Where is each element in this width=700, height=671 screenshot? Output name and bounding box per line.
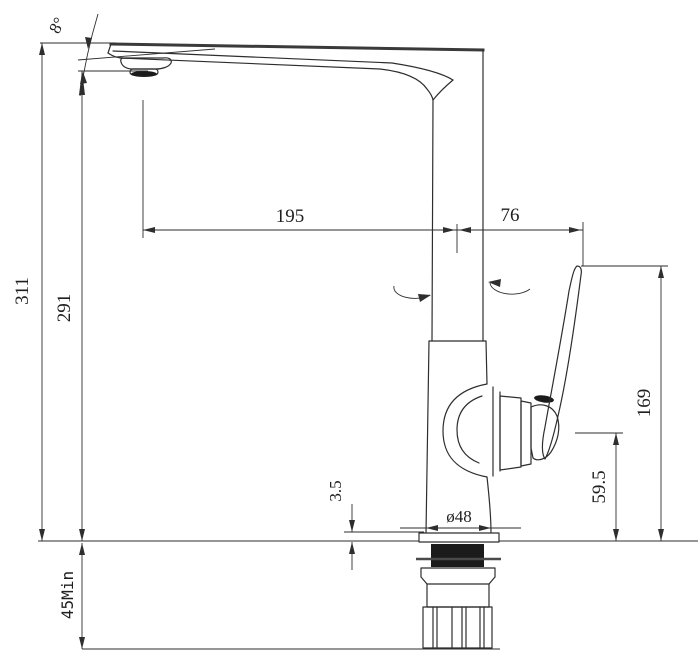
drawing-canvas: 8° 311 291 195 76 169 xyxy=(0,0,700,671)
cartridge-ring-1 xyxy=(500,396,521,470)
dim-base-diameter-label: ø48 xyxy=(446,507,472,526)
countertop-reference xyxy=(38,541,698,649)
dim-overall-height-label: 311 xyxy=(12,277,33,305)
arrowhead-up xyxy=(349,542,355,554)
arrowhead-down xyxy=(79,637,85,649)
arrowhead-down xyxy=(349,520,355,532)
dim-body-height: 59.5 xyxy=(575,433,623,541)
aerator-outlet xyxy=(131,71,157,77)
dim-plate-thickness-label: 3.5 xyxy=(326,480,345,501)
arrowhead-up xyxy=(39,43,45,55)
dim-outlet-height-label: 291 xyxy=(54,294,75,323)
valve-body-inner xyxy=(457,396,482,463)
threaded-shank xyxy=(431,544,484,567)
dim-handle-top-height-label: 169 xyxy=(634,389,655,418)
deck-plate xyxy=(419,533,499,542)
faucet-dimension-drawing: 8° 311 291 195 76 169 xyxy=(0,0,700,671)
valve-body-outer xyxy=(443,384,487,477)
swivel-arrowhead-left xyxy=(418,294,431,302)
swivel-arrows xyxy=(394,279,530,302)
arrowhead-down xyxy=(658,529,664,541)
faucet-outline xyxy=(108,44,581,648)
swivel-arrowhead-right xyxy=(488,279,501,287)
handle-lever xyxy=(542,266,581,459)
arrowhead-left xyxy=(426,525,438,531)
dim-spout-reach-label: 195 xyxy=(276,206,305,227)
body-right-edge-lower xyxy=(487,477,491,533)
arrowhead-down xyxy=(39,529,45,541)
body-right-edge-upper xyxy=(486,341,487,384)
arrowhead-up xyxy=(658,266,664,278)
mounting-flange xyxy=(421,568,495,584)
pipe-left-edge xyxy=(432,100,433,341)
dim-spout-to-handle-label: 76 xyxy=(501,205,520,226)
arrowhead-right xyxy=(443,227,455,233)
dim-body-height-label: 59.5 xyxy=(589,470,610,503)
mounting-nut-ribs xyxy=(433,607,484,648)
dim-spout-to-handle: 76 xyxy=(457,205,583,266)
spout-top-edge xyxy=(111,44,483,50)
dim-plate-thickness: 3.5 xyxy=(326,480,424,570)
arrowhead-down xyxy=(79,529,85,541)
mounting-cylinder xyxy=(427,584,489,607)
arrowhead-left xyxy=(459,227,471,233)
dim-base-diameter: ø48 xyxy=(400,507,521,531)
arrowhead-up xyxy=(79,543,85,555)
cartridge-ring-2 xyxy=(521,401,531,466)
dim-overall-height: 311 xyxy=(12,43,116,541)
arrowhead-right xyxy=(569,227,581,233)
dim-spout-angle: 8° xyxy=(45,14,215,96)
arrowhead-right xyxy=(479,525,491,531)
arrowhead-down xyxy=(613,529,619,541)
spout-lower-line xyxy=(113,51,453,80)
dim-under-counter-min-label: 45Min xyxy=(58,571,77,619)
dim-under-counter-min: 45Min xyxy=(58,543,85,649)
spout-blade-tip xyxy=(433,80,453,100)
dim-spout-angle-label: 8° xyxy=(45,14,69,36)
arrowhead-left xyxy=(143,227,155,233)
spout-underside-line xyxy=(120,58,433,100)
body-left-edge xyxy=(426,341,429,533)
dim-spout-reach: 195 xyxy=(143,100,457,253)
arrowhead-up xyxy=(613,433,619,445)
dim-outlet-height: 291 xyxy=(54,71,85,541)
